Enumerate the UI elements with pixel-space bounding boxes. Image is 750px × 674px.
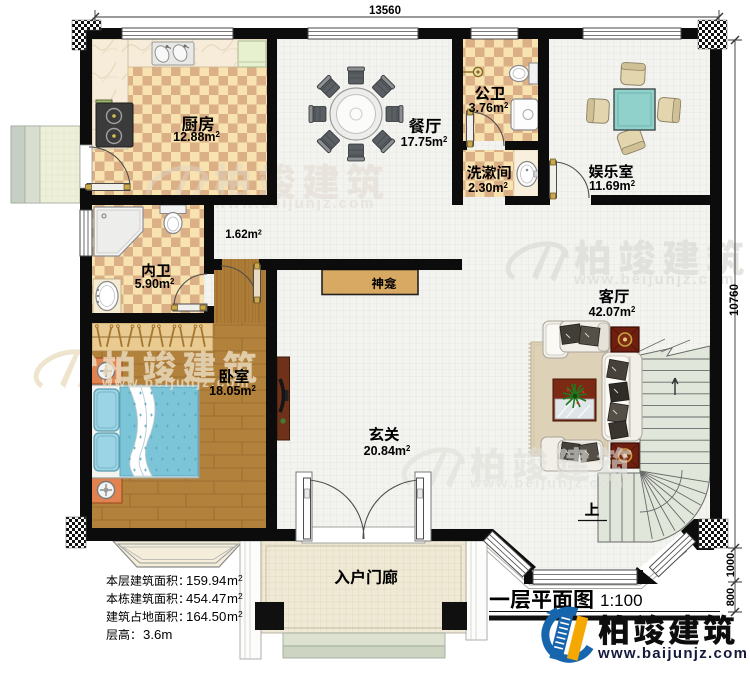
svg-text:42.07m2: 42.07m2 <box>589 305 636 319</box>
svg-text:1:100: 1:100 <box>600 591 643 610</box>
svg-text:13560: 13560 <box>369 5 401 17</box>
svg-text:3.6m: 3.6m <box>143 627 172 642</box>
svg-text:www.beijunjz.com: www.beijunjz.com <box>469 475 625 491</box>
svg-text:159.94: 159.94 <box>186 573 226 588</box>
svg-text:3.76m2: 3.76m2 <box>469 101 509 115</box>
svg-text:164.50: 164.50 <box>186 609 226 624</box>
svg-text:11.69m2: 11.69m2 <box>589 179 636 193</box>
svg-text:2.30m2: 2.30m2 <box>468 181 508 195</box>
svg-text:18.05m2: 18.05m2 <box>209 384 256 398</box>
svg-text:800: 800 <box>725 588 737 606</box>
svg-text:1.62m2: 1.62m2 <box>225 229 262 241</box>
svg-text:10760: 10760 <box>729 284 741 316</box>
svg-text:20.84m2: 20.84m2 <box>364 444 411 458</box>
svg-text:12.88m2: 12.88m2 <box>173 130 220 144</box>
svg-text:1000: 1000 <box>725 553 737 577</box>
svg-text:www.baijunjz.com: www.baijunjz.com <box>597 645 748 662</box>
svg-text:454.47: 454.47 <box>186 591 226 606</box>
svg-text:5.90m2: 5.90m2 <box>135 277 175 291</box>
svg-text:17.75m2: 17.75m2 <box>401 135 448 149</box>
